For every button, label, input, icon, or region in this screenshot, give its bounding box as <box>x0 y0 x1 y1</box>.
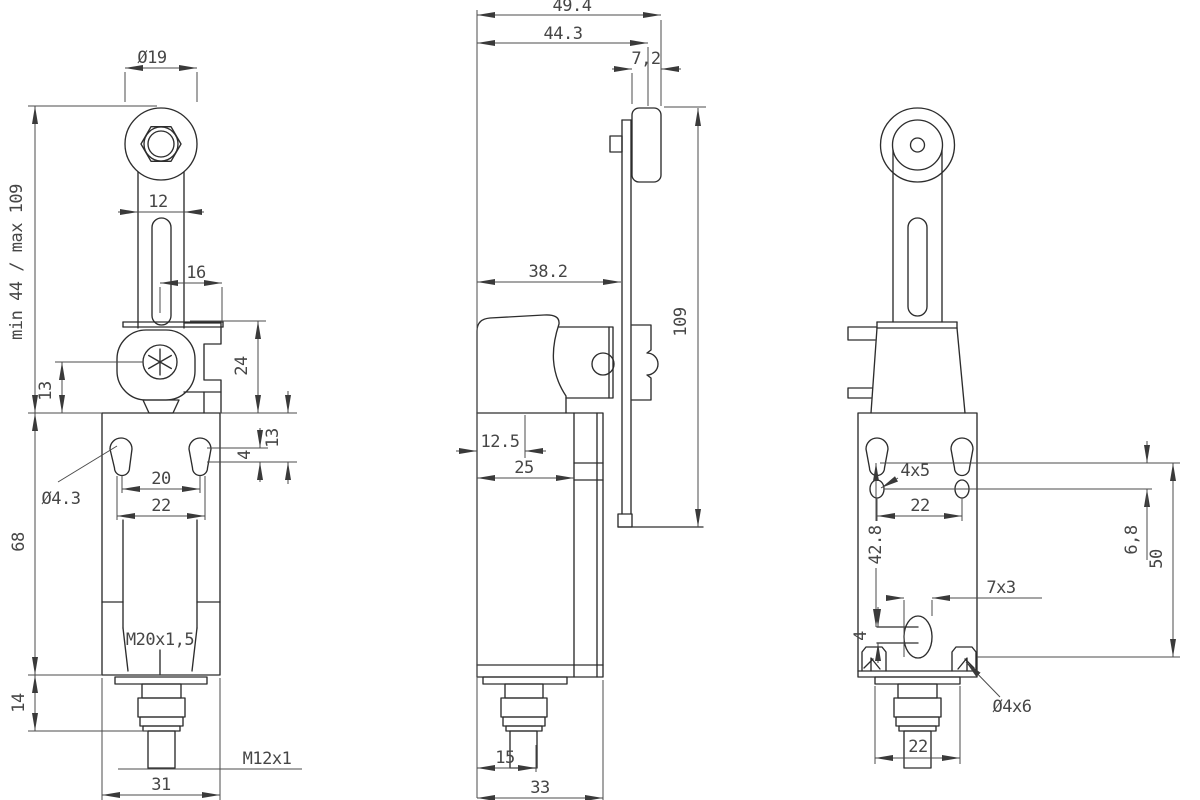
dim-gland-thread: M20x1,5 <box>126 630 194 650</box>
dim-slot-offset: 6,8 <box>1122 525 1142 554</box>
dim-flange-height: 14 <box>9 693 29 713</box>
dim-body-width: 31 <box>151 775 171 795</box>
front-roller-lever <box>125 108 197 328</box>
dim-connector-offset-2: 15 <box>495 748 514 768</box>
dim-clip-hole: Ø4x6 <box>993 697 1032 717</box>
dim-hole-span: 22 <box>151 496 170 516</box>
dim-edge-height: 13 <box>263 428 283 447</box>
dim-lever-width: 12 <box>148 192 167 212</box>
dim-travel-range: min 44 / max 109 <box>7 184 27 340</box>
side-dimensions: 49.4 44.3 7,2 38.2 109 12.5 25 <box>456 0 706 800</box>
dim-lever-length: 109 <box>671 307 691 336</box>
dim-oblong-hole: 7x3 <box>986 578 1015 598</box>
dim-hole-diameter: Ø4.3 <box>42 489 81 509</box>
dim-hole-pitch: 20 <box>151 469 171 489</box>
snap-clip-left <box>862 647 886 671</box>
limit-switch-drawing: Ø19 12 min 44 / max 109 16 13 24 <box>0 0 1200 800</box>
snap-clip-right <box>952 647 976 671</box>
dim-connector-thread: M12x1 <box>243 749 292 769</box>
dim-slot-width: 4 <box>235 450 255 460</box>
front-view: Ø19 12 min 44 / max 109 16 13 24 <box>7 48 302 800</box>
front-connector <box>115 677 207 768</box>
side-view: 49.4 44.3 7,2 38.2 109 12.5 25 <box>456 0 706 800</box>
dim-total-depth: 49.4 <box>553 0 592 16</box>
back-roller-lever <box>848 108 965 413</box>
dim-arm-offset: 16 <box>186 263 206 283</box>
dim-body-height: 68 <box>9 532 29 552</box>
dim-mount-height: 50 <box>1147 549 1167 569</box>
dim-pivot-height: 13 <box>36 381 56 400</box>
back-dimensions: 4x5 22 42.8 6,8 50 7x3 <box>851 441 1180 764</box>
dim-oblong-offset: 4 <box>851 631 871 641</box>
dim-hole-height: 42.8 <box>866 525 886 564</box>
dim-mechanism-offset: 25 <box>514 458 533 478</box>
side-body <box>477 413 603 677</box>
screw-star-icon <box>149 349 172 375</box>
dim-roller-diameter: Ø19 <box>137 48 166 68</box>
drawing-sheet: Ø19 12 min 44 / max 109 16 13 24 <box>0 0 1200 800</box>
dim-slot-size: 4x5 <box>900 461 929 481</box>
dim-disc-thickness: 7,2 <box>631 49 660 69</box>
dim-body-depth: 33 <box>530 778 549 798</box>
dim-connector-width: 22 <box>908 737 927 757</box>
dim-lever-depth: 38.2 <box>529 262 568 282</box>
dim-hole-pitch-back: 22 <box>910 496 929 516</box>
dim-connector-offset: 12.5 <box>481 432 520 452</box>
back-view: 4x5 22 42.8 6,8 50 7x3 <box>848 108 1180 768</box>
dim-head-height: 24 <box>232 356 252 376</box>
dim-roller-depth: 44.3 <box>544 24 583 44</box>
side-head <box>477 315 614 413</box>
front-pivot-clamp <box>117 322 223 413</box>
